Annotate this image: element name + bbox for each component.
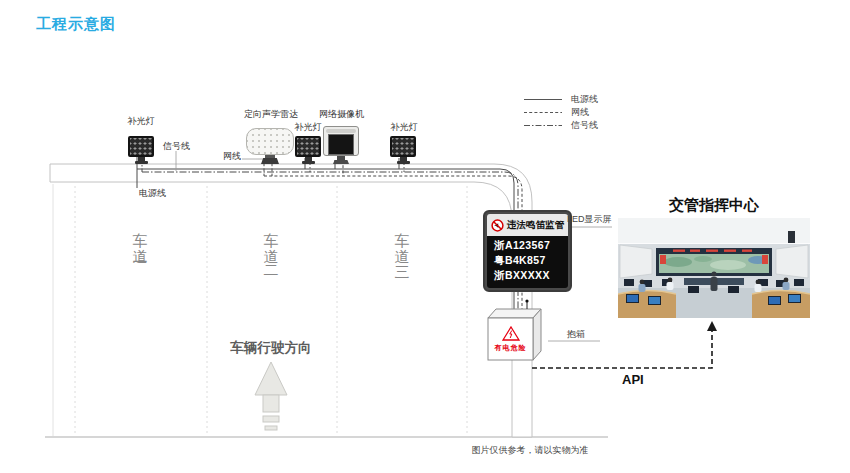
led-header: 违法鸣笛监管 [487, 214, 568, 236]
command-center-title: 交管指挥中心 [618, 196, 810, 215]
led-header-text: 违法鸣笛监管 [507, 219, 564, 232]
legend-label-power: 电源线 [571, 93, 598, 106]
signal-line-swatch [524, 123, 562, 128]
legend-label-network: 网线 [571, 106, 589, 119]
network-camera [323, 126, 359, 164]
cabinet-callout: 抱箱 [567, 328, 585, 341]
plate-line-2: 粤B4K857 [494, 253, 568, 268]
direction-label: 车辆行驶方向 [201, 339, 341, 357]
fill-light-led-panel [390, 136, 416, 157]
radar-base [261, 158, 279, 164]
page-title: 工程示意图 [36, 15, 116, 34]
api-arrowhead [707, 321, 717, 331]
fill-light-base [135, 161, 148, 164]
api-connector [532, 321, 717, 368]
radar-mount [265, 155, 275, 158]
fill-light-led-panel [295, 136, 321, 157]
plate-line-3: 浙BXXXXX [494, 268, 568, 283]
network-line-swatch [524, 110, 562, 115]
fill-light-base [302, 161, 315, 164]
power-cable-label: 电源线 [139, 189, 166, 199]
acoustic-radar [246, 128, 294, 164]
legend-label-signal: 信号线 [571, 119, 598, 132]
led-display-callout: LED显示屏 [567, 213, 612, 226]
signal-cable-label: 信号线 [163, 142, 190, 152]
cabinet-warning: 有电危险 [489, 320, 532, 358]
command-center-photo [618, 218, 810, 318]
lane-3-label: 车道三 [395, 220, 410, 271]
control-room-scene [618, 218, 810, 318]
power-line-swatch [524, 97, 562, 102]
direction-arrow [255, 362, 287, 430]
footer-note: 图片仅供参考，请以实物为准 [430, 444, 630, 457]
plate-line-1: 浙A123567 [494, 238, 568, 253]
camera-visor [326, 129, 356, 133]
gantry-beam-and-pole [50, 164, 532, 437]
fill-light-label-1: 补光灯 [122, 117, 160, 127]
camera-base [333, 160, 349, 164]
fill-light-base [397, 161, 410, 164]
legend-item-network: 网线 [524, 108, 598, 117]
camera-lens [328, 134, 354, 155]
radar-mic-array [246, 128, 294, 155]
network-cable-label: 网线 [223, 152, 241, 162]
fill-light-1 [128, 136, 154, 164]
led-display: 违法鸣笛监管 浙A123567 粤B4K857 浙BXXXXX [483, 210, 572, 292]
engineering-diagram: 工程示意图 电源线 网线 信号线 补光灯 定向声学雷达 补光灯 网络摄像机 补光… [0, 0, 850, 473]
led-screen: 浙A123567 粤B4K857 浙BXXXXX [487, 236, 568, 288]
camera-mount [337, 156, 345, 160]
camera-label: 网络摄像机 [319, 110, 364, 120]
fill-light-label-3: 补光灯 [385, 123, 423, 133]
legend: 电源线 网线 信号线 [524, 95, 598, 130]
legend-item-signal: 信号线 [524, 121, 598, 130]
api-label: API [622, 372, 644, 387]
radar-label: 定向声学雷达 [244, 110, 298, 120]
lane-2-label: 车道二 [264, 220, 279, 271]
fill-light-3 [390, 136, 416, 164]
fill-light-2 [295, 136, 321, 164]
camera-housing [323, 126, 359, 156]
cabinet-warning-text: 有电危险 [495, 343, 527, 353]
fill-light-label-2: 补光灯 [289, 123, 327, 133]
legend-item-power: 电源线 [524, 95, 598, 104]
no-horn-icon [491, 219, 504, 232]
electric-hazard-icon [502, 326, 520, 341]
fill-light-led-panel [128, 136, 154, 157]
lane-1-label: 车道一 [133, 220, 148, 271]
